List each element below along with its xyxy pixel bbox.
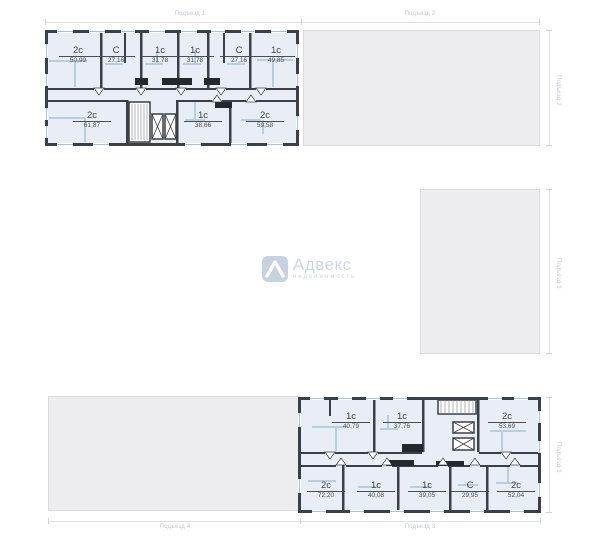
apartment-unit: С 29,95 (447, 480, 493, 500)
apartment-area: 40,08 (353, 492, 399, 500)
apartment-area: 39,05 (404, 492, 450, 500)
advecs-brand-text: Адвекс (293, 256, 356, 274)
advecs-logo-icon (262, 256, 288, 282)
advecs-subtitle-text: недвижимость (293, 274, 356, 281)
apartment-area: 40,79 (328, 423, 374, 431)
apartment-type: 1с (357, 480, 395, 492)
entrance3-floorplan: 1с 40,79 1с 37,76 2с 53,69 2с 72,20 1с 4… (298, 397, 541, 513)
advecs-watermark: Адвекс недвижимость (262, 256, 356, 282)
dimension-tick (540, 518, 541, 524)
dimension-line-bottom (48, 521, 541, 522)
apartment-area: 49,85 (253, 57, 299, 65)
apartment-unit: 2с 52,04 (493, 480, 539, 500)
apartment-type: 1с (176, 45, 214, 57)
dimension-tick (546, 353, 552, 354)
apartment-unit: 2с 59,58 (242, 110, 288, 130)
apartment-unit: С 27,16 (93, 45, 139, 65)
apartment-type: 2с (307, 480, 345, 492)
apartment-unit: 1с 40,08 (353, 480, 399, 500)
dimension-line-right-2 (549, 189, 550, 354)
apartment-unit: 2с 72,20 (303, 480, 349, 500)
apartment-area: 53,69 (484, 423, 530, 431)
entrance4-inactive-block (48, 396, 300, 511)
dimension-tick (48, 518, 49, 524)
dimension-tick (546, 512, 552, 513)
apartment-type: 2с (246, 110, 284, 122)
apartment-unit: 1с 49,85 (253, 45, 299, 65)
apartment-area: 61,87 (69, 122, 115, 130)
apartment-type: 2с (497, 480, 535, 492)
entrance1-top-label: Подъезд 1 (145, 11, 235, 18)
apartment-unit: 1с 40,79 (328, 411, 374, 431)
dimension-tick (300, 518, 301, 524)
apartment-type: С (451, 480, 489, 492)
entrance2-top-label: Подъезд 2 (375, 11, 465, 18)
stairwell (129, 102, 150, 142)
entrance2-inactive-block (303, 30, 540, 146)
dimension-tick (539, 19, 540, 25)
apartment-area: 72,20 (303, 492, 349, 500)
apartment-unit: 2с 53,69 (484, 411, 530, 431)
apartment-type: 2с (488, 411, 526, 423)
apartment-type: 1с (332, 411, 370, 423)
advecs-text-block: Адвекс недвижимость (293, 256, 356, 281)
apartment-type: 2с (59, 45, 97, 57)
apartment-area: 37,76 (379, 423, 425, 431)
entrance1-floorplan: 2с 50,99 С 27,16 1с 31,78 1с 31,78 С 27,… (45, 30, 299, 146)
apartment-type: 1с (184, 110, 222, 122)
apartment-type: 1с (383, 411, 421, 423)
apartment-unit: 1с 31,78 (172, 45, 218, 65)
dimension-line-right-3 (549, 397, 550, 513)
apartment-area: 59,58 (242, 122, 288, 130)
apartment-type: С (97, 45, 135, 57)
dimension-tick (546, 145, 552, 146)
dimension-tick (45, 19, 46, 25)
dimension-tick (546, 397, 552, 398)
apartment-area: 38,66 (180, 122, 226, 130)
apartment-unit: 1с 38,66 (180, 110, 226, 130)
floorplan-image: Подъезд 1 Подъезд 2 Подъезд 2 Подъезд 3 … (0, 0, 600, 544)
apartment-area: 27,16 (93, 57, 139, 65)
entrance3-bottom-label: Подъезд 3 (375, 524, 465, 531)
dimension-line-right-1 (549, 30, 550, 146)
entrance2-right-label: Подъезд 2 (552, 55, 561, 125)
dimension-line-top (45, 22, 540, 23)
entrance3-mid-right-label: Подъезд 3 (552, 238, 561, 308)
apartment-unit: 2с 61,87 (69, 110, 115, 130)
dimension-tick (546, 189, 552, 190)
apartment-type: 2с (73, 110, 111, 122)
entrance3-right-label: Подъезд 3 (552, 422, 561, 492)
apartment-area: 52,04 (493, 492, 539, 500)
stairwell (438, 400, 476, 414)
dimension-tick (301, 19, 302, 25)
entrance3-upper-inactive-block (420, 189, 540, 354)
apartment-area: 29,95 (447, 492, 493, 500)
apartment-type: 1с (408, 480, 446, 492)
apartment-unit: 1с 39,05 (404, 480, 450, 500)
dimension-tick (546, 30, 552, 31)
apartment-area: 31,78 (172, 57, 218, 65)
apartment-type: 1с (257, 45, 295, 57)
apartment-unit: 1с 37,76 (379, 411, 425, 431)
entrance4-bottom-label: Подъезд 4 (130, 524, 220, 531)
